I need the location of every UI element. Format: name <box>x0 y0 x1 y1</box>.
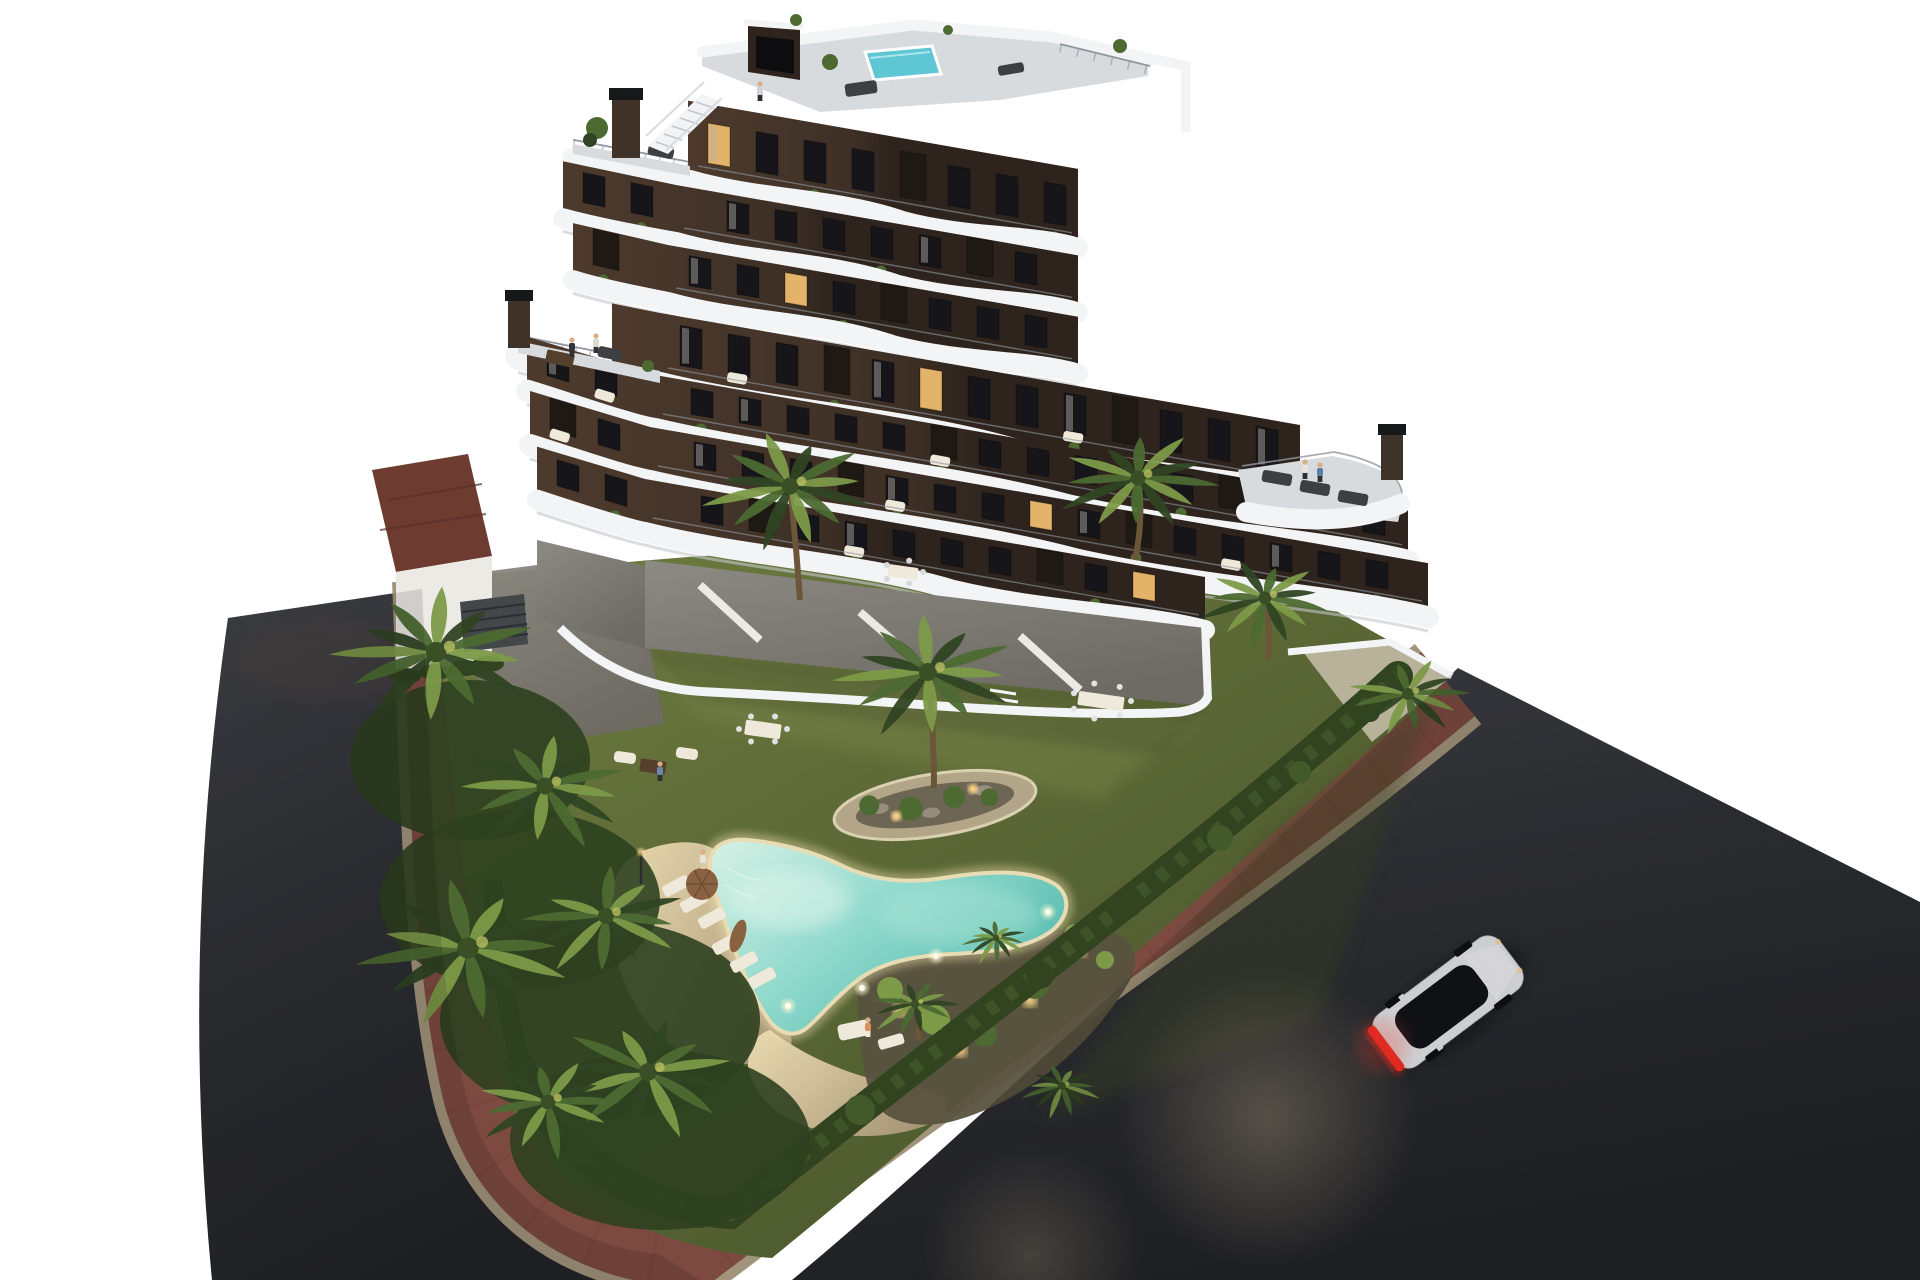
chair <box>1091 716 1097 722</box>
chimney <box>1381 432 1403 480</box>
window <box>804 140 826 184</box>
window <box>1030 501 1052 531</box>
palm-accent <box>999 934 1003 938</box>
palm-crown <box>639 1063 657 1081</box>
window <box>948 165 970 209</box>
window <box>871 226 893 260</box>
chair <box>736 726 742 732</box>
window <box>737 264 759 298</box>
window <box>1085 563 1107 593</box>
window <box>785 272 807 306</box>
palm-crown <box>911 1000 920 1009</box>
person-head <box>700 849 705 854</box>
potted-plant <box>642 360 654 372</box>
palm-crown <box>919 663 937 681</box>
person-legs <box>1318 475 1323 482</box>
balcony-door <box>1037 549 1063 586</box>
person-legs <box>570 350 575 357</box>
palm-crown <box>1130 470 1145 485</box>
chair <box>784 726 790 732</box>
balcony-door <box>1112 395 1138 446</box>
palm-crown <box>536 777 553 794</box>
curtain <box>729 203 736 229</box>
window <box>934 484 956 514</box>
person-body <box>1317 468 1323 476</box>
hedge-bush <box>938 1028 962 1052</box>
pool-light <box>859 985 865 991</box>
roof-plant <box>790 14 802 26</box>
hedge-bush <box>1207 825 1233 851</box>
chair <box>906 580 912 586</box>
window <box>941 538 963 568</box>
person-body <box>700 855 706 863</box>
window <box>835 414 857 444</box>
hedge-bush <box>1289 761 1311 783</box>
chair <box>884 562 890 568</box>
palm-accent <box>552 777 562 787</box>
person-legs <box>701 862 706 869</box>
window <box>1366 559 1388 589</box>
curtain <box>696 444 703 466</box>
window <box>893 529 915 559</box>
balcony-door <box>881 283 907 324</box>
person <box>865 1017 871 1037</box>
curtain <box>847 523 854 545</box>
person <box>657 761 663 781</box>
curtain <box>691 258 698 284</box>
garden-wall-end <box>1205 624 1208 700</box>
person <box>757 81 763 101</box>
person-body <box>569 343 575 351</box>
window <box>1133 571 1155 601</box>
person-body <box>657 767 663 775</box>
bulkhead-opening <box>756 36 794 74</box>
window <box>1174 526 1196 556</box>
window <box>631 183 653 218</box>
render-canvas <box>0 0 1920 1280</box>
chair <box>772 738 778 744</box>
parasol-open <box>686 868 718 900</box>
chair <box>1117 712 1123 718</box>
chair <box>906 558 912 564</box>
window <box>996 174 1018 218</box>
palm-crown <box>993 935 999 941</box>
lit-shrub <box>1096 951 1114 969</box>
palm-crown <box>457 937 478 958</box>
palm-crown <box>598 908 614 924</box>
chair <box>884 576 890 582</box>
palm-accent <box>476 936 488 948</box>
balcony-door <box>967 237 993 278</box>
window <box>1016 384 1038 428</box>
person-head <box>657 761 662 766</box>
window <box>1015 251 1037 285</box>
palm-accent <box>554 1094 562 1102</box>
palm-crown <box>781 477 798 494</box>
neighbor-roof <box>372 454 492 572</box>
chair <box>1071 706 1077 712</box>
pool-light <box>1045 909 1051 915</box>
person <box>700 849 706 869</box>
window <box>989 546 1011 576</box>
person <box>569 337 575 357</box>
palm-crown <box>541 1095 556 1110</box>
palm-crown <box>1402 688 1414 700</box>
person-head <box>865 1017 870 1022</box>
curtain <box>1258 428 1265 464</box>
person-head <box>569 337 574 342</box>
lamp-light <box>638 849 645 856</box>
pool-light <box>785 1003 791 1009</box>
balcony-door <box>593 229 619 271</box>
window <box>787 405 809 435</box>
curtain <box>710 125 717 161</box>
curtain <box>1272 545 1279 567</box>
window <box>982 492 1004 522</box>
curtain <box>1080 511 1087 533</box>
curtain <box>874 361 881 397</box>
palm-accent <box>918 999 923 1004</box>
window <box>776 342 798 386</box>
window <box>833 281 855 315</box>
curtain <box>682 328 689 364</box>
chimney-cap <box>505 290 533 301</box>
curtain <box>1066 395 1073 431</box>
person-legs <box>594 346 599 353</box>
window <box>691 388 713 418</box>
palm-accent <box>1144 470 1153 479</box>
window <box>1318 551 1340 581</box>
curtain <box>921 237 928 263</box>
window <box>1025 314 1047 348</box>
person-legs <box>866 1030 871 1037</box>
chair <box>748 738 754 744</box>
window <box>756 132 778 176</box>
person <box>593 333 599 353</box>
chair <box>1117 684 1123 690</box>
window <box>968 376 990 420</box>
palm-accent <box>935 662 945 672</box>
chair <box>1071 690 1077 696</box>
window <box>883 422 905 452</box>
palm-accent <box>797 477 807 487</box>
pool-shallow-glow <box>730 870 850 930</box>
palm-accent <box>1413 687 1420 694</box>
chimney <box>508 296 530 348</box>
chimney <box>612 96 640 158</box>
chair <box>920 569 926 575</box>
balcony-door <box>824 345 850 396</box>
person-head <box>1317 462 1322 467</box>
window <box>979 439 1001 469</box>
chimney-cap <box>609 88 643 100</box>
roof-plant <box>822 54 838 70</box>
person-body <box>593 339 599 347</box>
roof-plant <box>1113 39 1127 53</box>
hedge-bush <box>845 1095 875 1125</box>
window <box>977 306 999 340</box>
pool-light <box>933 953 939 959</box>
person <box>1302 459 1308 479</box>
window <box>775 209 797 243</box>
terrace-tree <box>583 133 597 147</box>
chair <box>748 714 754 720</box>
curtain <box>741 399 748 421</box>
person-body <box>757 87 763 95</box>
window <box>728 334 750 378</box>
person-body <box>865 1023 871 1031</box>
pool-mid-glow <box>880 885 1040 945</box>
chair <box>772 714 778 720</box>
hedge-bush <box>1026 961 1054 989</box>
window <box>929 298 951 332</box>
chair <box>1128 698 1134 704</box>
person-legs <box>758 94 763 101</box>
person-legs <box>1303 472 1308 479</box>
palm-crown <box>426 642 446 662</box>
window <box>583 172 605 207</box>
person-body <box>1302 465 1308 473</box>
roof-plant <box>943 25 953 35</box>
chimney-cap <box>1378 424 1406 435</box>
person-head <box>593 333 598 338</box>
palm-crown <box>1259 592 1272 605</box>
person-head <box>757 81 762 86</box>
window <box>823 218 845 252</box>
palm-accent <box>1270 591 1277 598</box>
palm-accent <box>444 641 455 652</box>
person-legs <box>658 774 663 781</box>
person-head <box>1302 459 1307 464</box>
window <box>1027 447 1049 477</box>
balcony-door <box>900 151 926 202</box>
palm-accent <box>612 907 621 916</box>
person <box>1317 462 1323 482</box>
window <box>1208 418 1230 462</box>
window <box>852 148 874 192</box>
window <box>920 368 942 412</box>
palm-accent <box>655 1062 665 1072</box>
chair <box>1091 680 1097 686</box>
architectural-render <box>0 0 1920 1280</box>
window <box>1044 182 1066 226</box>
hedge-bush <box>1118 893 1142 917</box>
curtain <box>888 477 895 499</box>
